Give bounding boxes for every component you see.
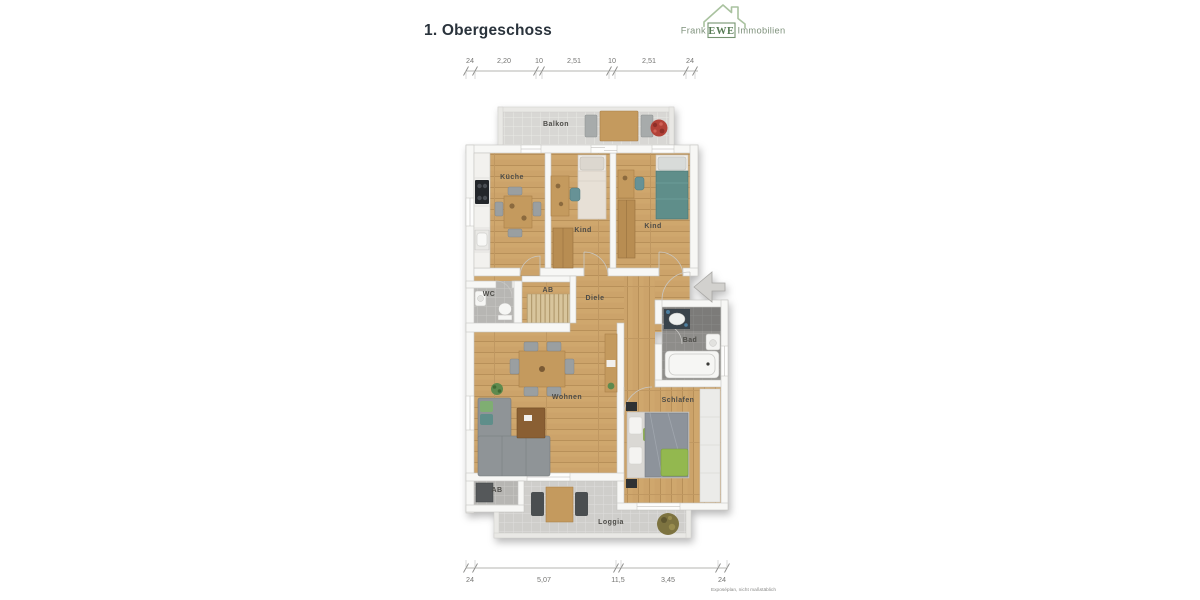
dimension-label: 2,51 (567, 56, 581, 65)
cushion (480, 401, 493, 412)
dimension-label: 10 (535, 56, 543, 65)
dimension-label: 2,20 (497, 56, 511, 65)
dry-plant (657, 513, 679, 535)
desk (618, 170, 634, 198)
room-label-ab-1: AB (542, 287, 553, 294)
blanket (656, 171, 688, 219)
storage-shelf (527, 294, 570, 323)
chair (570, 188, 580, 201)
coffee-table (517, 408, 545, 438)
storage-unit (476, 483, 493, 502)
kitchen-table (504, 196, 532, 228)
floor-plan: Balkon Küche Kind Kind WC AB Diele Bad W… (466, 107, 728, 538)
dimension-label: 2,51 (642, 56, 656, 65)
dimension-label: 24 (466, 575, 474, 584)
company-logo: Frank EWE Immobilien (681, 5, 786, 38)
toilet (498, 303, 512, 320)
kitchen-counter (474, 153, 490, 268)
bench (585, 115, 597, 137)
room-label-wc: WC (483, 291, 496, 298)
chair (575, 492, 588, 516)
dimension-label: 24 (466, 56, 474, 65)
dimension-label: 24 (686, 56, 694, 65)
room-label-kind-2: Kind (644, 223, 661, 230)
red-plant (651, 120, 668, 137)
dimension-label: 5,07 (537, 575, 551, 584)
nightstand (626, 402, 637, 411)
dimension-label: 24 (718, 575, 726, 584)
desk (551, 176, 569, 216)
dimension-label: 3,45 (661, 575, 675, 584)
green-plant (491, 383, 503, 395)
room-label-ab-2: AB (491, 487, 502, 494)
room-label-balkon: Balkon (543, 121, 569, 128)
page-title: 1. Obergeschoss (424, 22, 552, 39)
entrance-arrow-icon (694, 272, 725, 302)
dimension-chain-top: 24 2,20 10 2,51 10 2,51 24 (464, 56, 699, 79)
balcony-door (591, 145, 617, 153)
book (524, 415, 532, 421)
pillow (580, 157, 604, 170)
room-label-kind-1: Kind (574, 227, 591, 234)
bathtub (665, 351, 719, 378)
blanket (661, 449, 688, 476)
blanket (578, 171, 606, 219)
dimension-chain-bottom: 24 5,07 11,5 3,45 24 Exposéplan, nicht m… (464, 560, 777, 593)
balcony-railing (498, 107, 674, 112)
stove (475, 180, 489, 204)
nightstand (626, 479, 637, 488)
pillow (658, 157, 686, 170)
logo-mark: EWE (708, 26, 734, 37)
room-label-loggia: Loggia (598, 519, 624, 526)
sideboard (605, 334, 617, 392)
room-label-bad: Bad (683, 337, 698, 344)
room-label-wohnen: Wohnen (552, 394, 582, 401)
dimension-label: 10 (608, 56, 616, 65)
wardrobe (700, 389, 720, 502)
room-label-diele: Diele (586, 295, 605, 302)
washbasin (669, 313, 685, 325)
plan-footnote: Exposéplan, nicht maßstäblich (711, 587, 776, 593)
toilet (706, 334, 720, 350)
logo-suffix: Immobilien (738, 26, 786, 36)
chair (635, 177, 644, 190)
floor-plan-svg: 1. Obergeschoss Frank EWE Immobilien (0, 0, 1200, 600)
logo-prefix: Frank (681, 26, 706, 36)
room-label-schlafen: Schlafen (662, 397, 695, 404)
loggia-table (546, 487, 573, 522)
room-balkon (498, 107, 674, 147)
room-label-kueche: Küche (500, 174, 524, 181)
floorplan-page: 1. Obergeschoss Frank EWE Immobilien (0, 0, 1200, 600)
balcony-table (600, 111, 638, 141)
cushion (480, 414, 493, 425)
dimension-label: 11,5 (611, 575, 624, 584)
double-bed (627, 412, 689, 478)
pillow (629, 417, 642, 434)
pillow (629, 447, 642, 464)
chair (531, 492, 544, 516)
